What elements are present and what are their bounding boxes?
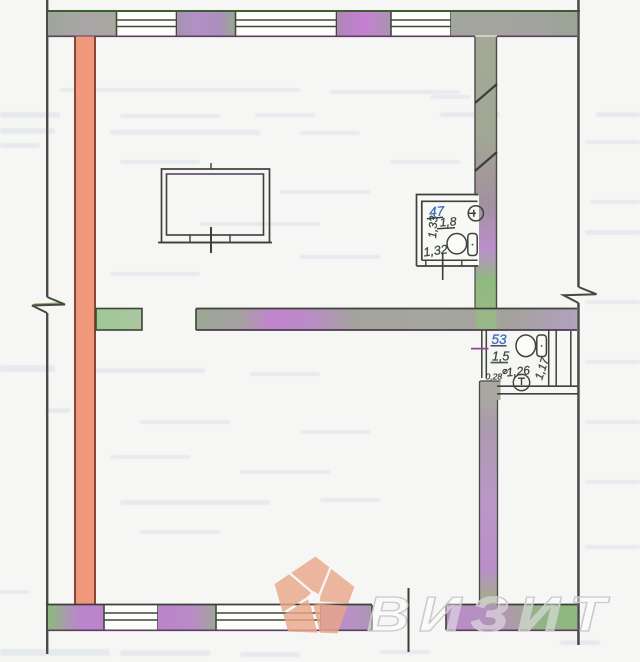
svg-text:53: 53 — [492, 332, 508, 347]
svg-text:0,28: 0,28 — [486, 372, 503, 382]
svg-text:1,5: 1,5 — [492, 350, 509, 364]
svg-text:1,33: 1,33 — [427, 215, 441, 239]
svg-text:ВИЗИТ: ВИЗИТ — [367, 587, 615, 642]
